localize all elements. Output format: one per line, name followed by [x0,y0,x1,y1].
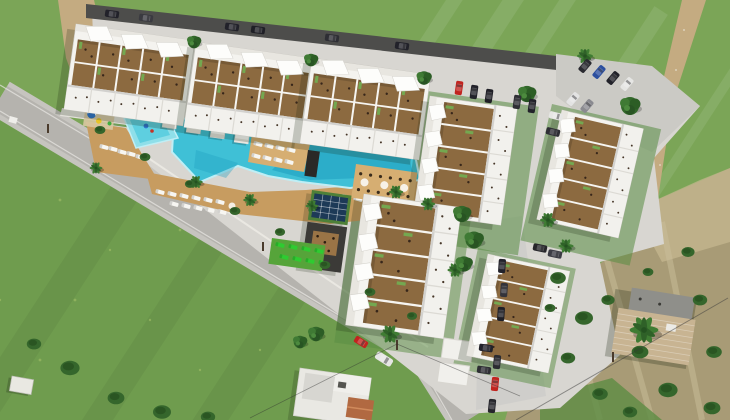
apartment-block-6 [336,193,462,345]
utility-pole [612,352,614,362]
utility-pole [47,124,49,133]
apartment-block-3 [291,55,431,166]
utility-pole [262,242,264,251]
aerial-render [0,0,730,420]
apartment-block-1 [55,21,195,132]
utility-pole [396,340,398,350]
pool-float [150,129,154,133]
